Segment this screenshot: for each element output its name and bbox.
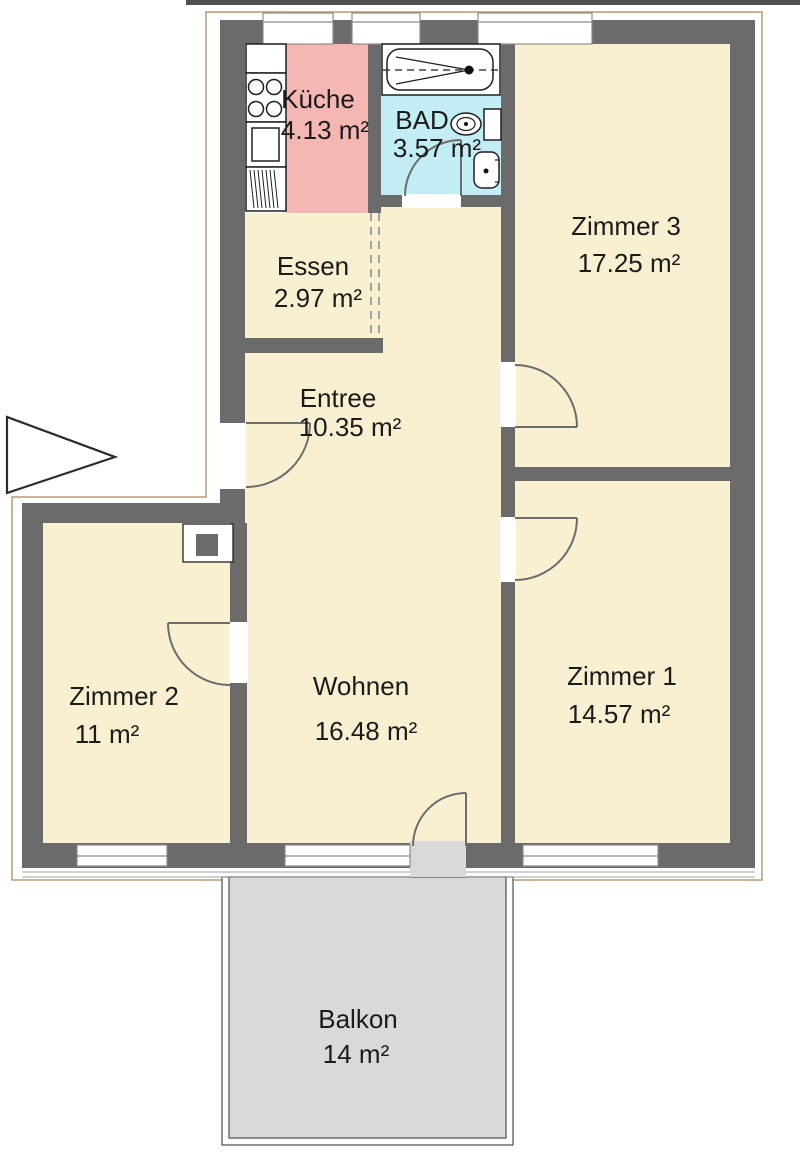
wall-left-lower — [22, 503, 43, 868]
entrance-arrow-icon — [7, 417, 115, 493]
floor-plan-drawing — [0, 0, 800, 1172]
bad-door-opening — [402, 194, 461, 208]
room-label-wohnen-area: 16.48 m² — [315, 718, 418, 744]
room-label-entree-name: Entree — [300, 385, 377, 411]
room-label-zimmer2-area: 11 m² — [75, 721, 140, 747]
room-label-zimmer1-name: Zimmer 1 — [567, 663, 677, 689]
wall-zimmer2-top — [22, 503, 245, 523]
room-label-bad-name: BAD — [395, 107, 448, 133]
zimmer2-door-opening — [229, 622, 248, 683]
room-label-zimmer2-name: Zimmer 2 — [69, 683, 179, 709]
fridge-icon — [246, 44, 286, 73]
toilet-cistern-icon — [484, 109, 501, 140]
window-sills — [22, 872, 755, 877]
wall-main-vertical — [501, 44, 515, 843]
duct-icon — [183, 524, 233, 562]
room-label-balkon-area: 14 m² — [323, 1041, 389, 1067]
zimmer1-door-opening — [500, 517, 516, 582]
top-edge-band — [186, 0, 800, 5]
room-label-entree-area: 10.35 m² — [299, 414, 402, 440]
room-label-essen-name: Essen — [277, 253, 349, 279]
wall-kueche-bad — [368, 44, 381, 213]
room-label-wohnen-name: Wohnen — [313, 673, 409, 699]
zimmer3-door-opening — [500, 362, 516, 427]
room-label-bad-area: 3.57 m² — [393, 135, 481, 161]
room-label-zimmer3-name: Zimmer 3 — [571, 213, 681, 239]
entrance-door-opening — [219, 423, 246, 489]
wall-zimmer3-zimmer1 — [505, 467, 730, 481]
room-label-essen-area: 2.97 m² — [274, 285, 362, 311]
window-bad — [352, 13, 420, 44]
wall-right — [730, 20, 755, 868]
room-label-zimmer3-area: 17.25 m² — [578, 250, 681, 276]
window-zimmer3 — [478, 13, 592, 44]
room-label-kueche-name: Küche — [281, 86, 355, 112]
wall-essen-bottom — [222, 338, 383, 353]
window-kueche — [263, 13, 333, 44]
room-label-zimmer1-area: 14.57 m² — [568, 701, 671, 727]
room-label-balkon-name: Balkon — [318, 1006, 398, 1032]
floor-plan: Küche 4.13 m² BAD 3.57 m² Zimmer 3 17.25… — [0, 0, 800, 1172]
balcony-door-threshold — [410, 841, 466, 877]
room-label-kueche-area: 4.13 m² — [281, 117, 369, 143]
